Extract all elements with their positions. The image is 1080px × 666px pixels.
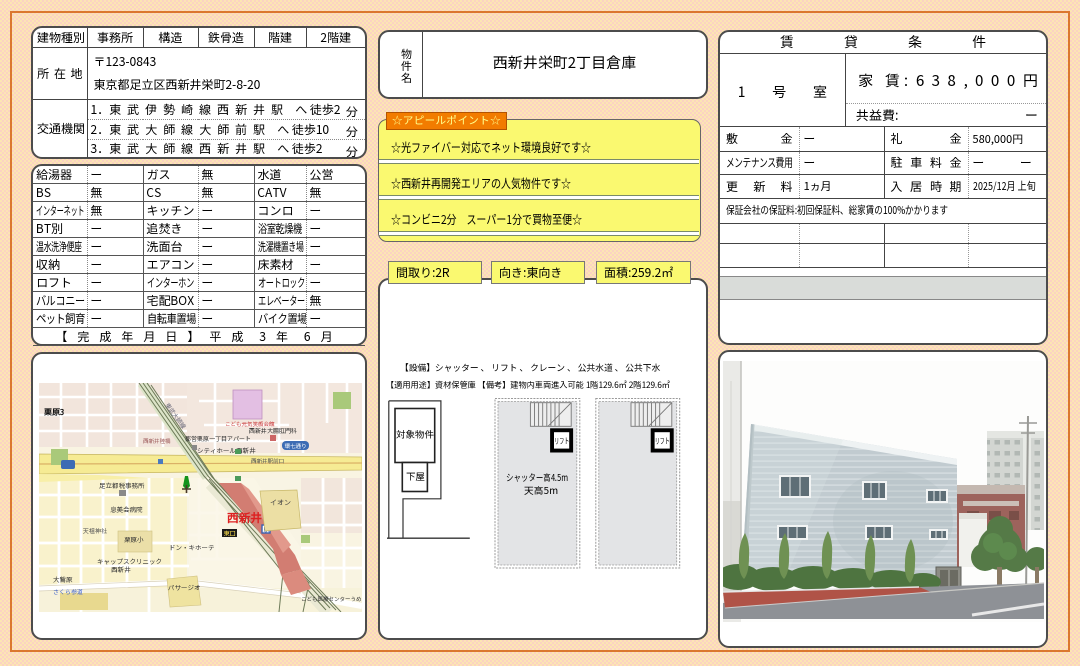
svg-text:西新井陸橋: 西新井陸橋 — [143, 437, 171, 445]
svg-text:ドン・キホーテ: ドン・キホーテ — [169, 542, 215, 552]
svg-text:対象物件: 対象物件 — [396, 427, 434, 441]
svg-text:リフト: リフト — [554, 436, 569, 447]
svg-text:西新井大腸肛門科: 西新井大腸肛門科 — [249, 426, 297, 435]
svg-text:息美会病院: 息美会病院 — [110, 504, 143, 514]
svg-text:環七通り: 環七通り — [285, 442, 307, 450]
svg-text:イオン: イオン — [270, 498, 291, 508]
svg-text:栗原3: 栗原3 — [43, 407, 65, 418]
svg-text:天祖神社: 天祖神社 — [82, 526, 108, 535]
svg-text:さくら参道: さくら参道 — [53, 587, 83, 596]
svg-text:天高5m: 天高5m — [524, 483, 558, 497]
svg-text:パサージオ: パサージオ — [168, 582, 201, 592]
svg-text:東口: 東口 — [224, 529, 236, 538]
svg-text:大鷲原: 大鷲原 — [53, 574, 73, 584]
svg-text:シティホール西新井: シティホール西新井 — [197, 445, 256, 455]
svg-text:西新井駅前口: 西新井駅前口 — [251, 457, 285, 465]
svg-text:シャッター高4.5m: シャッター高4.5m — [506, 470, 568, 484]
svg-text:栗原小: 栗原小 — [124, 534, 144, 544]
svg-text:こども医療センターうめだ: こども医療センターうめだ — [301, 595, 362, 603]
svg-text:足立都税事務所: 足立都税事務所 — [99, 480, 145, 490]
svg-text:下屋: 下屋 — [406, 469, 426, 483]
svg-text:西新井: 西新井 — [111, 564, 131, 574]
svg-text:都営栗原一丁目アパート: 都営栗原一丁目アパート — [185, 434, 251, 443]
svg-text:リフト: リフト — [655, 436, 670, 447]
svg-text:西新井: 西新井 — [227, 510, 262, 526]
